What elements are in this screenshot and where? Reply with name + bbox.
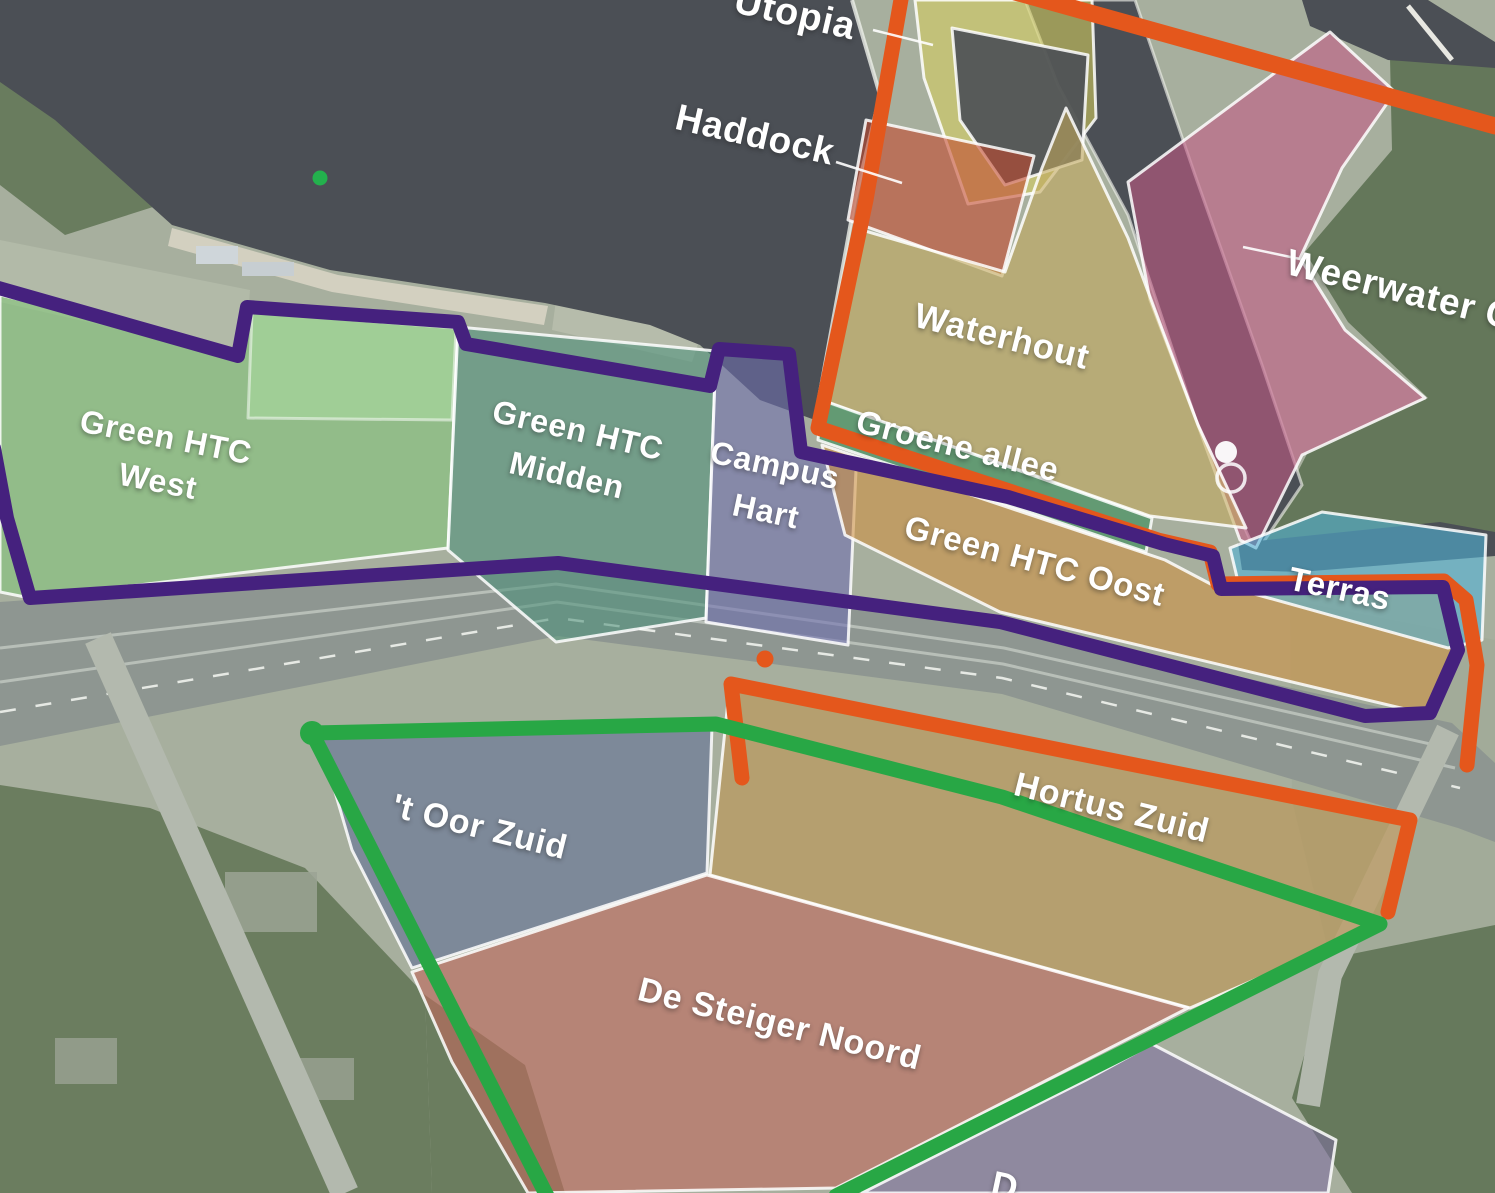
marina bbox=[196, 246, 238, 264]
green-corner-dot bbox=[300, 721, 324, 745]
zone-green-htc-west-inner bbox=[248, 312, 456, 420]
aerial-map: Utopia Haddock Weerwater C Waterhout Gro… bbox=[0, 0, 1495, 1193]
buildings-patch bbox=[55, 1038, 117, 1084]
marina bbox=[242, 262, 294, 276]
green-water-dot bbox=[313, 171, 328, 186]
map-canvas[interactable]: Utopia Haddock Weerwater C Waterhout Gro… bbox=[0, 0, 1495, 1193]
orange-dot bbox=[757, 651, 774, 668]
